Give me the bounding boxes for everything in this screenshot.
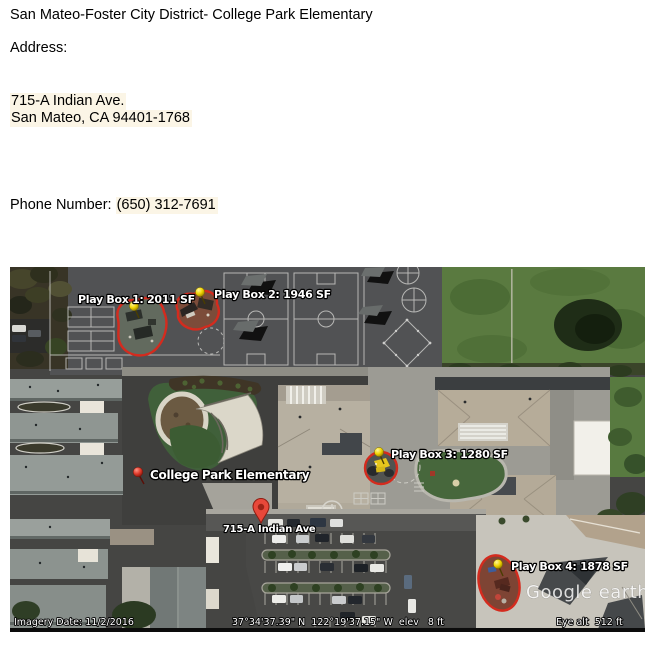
play-box-4-label: Play Box 4: 1878 SF (511, 560, 628, 573)
address-label: Address: (10, 40, 67, 57)
phone-label: Phone Number: (10, 197, 116, 213)
address-line-1-text: 715-A Indian Ave. (10, 93, 126, 110)
street-address-label: 715-A Indian Ave (223, 524, 316, 535)
coordinates-text: 37°34'37.39" N 122°19'37.15" W elev 8 ft (232, 617, 444, 628)
phone-number: (650) 312-7691 (116, 197, 218, 214)
aerial-map-image: Play Box 1: 2011 SF Play Box 2: 1946 SF … (10, 267, 645, 632)
school-label: College Park Elementary (150, 468, 310, 482)
address-line-2: San Mateo, CA 94401-1768 (10, 110, 192, 127)
play-box-3-label: Play Box 3: 1280 SF (391, 448, 508, 461)
image-bottom-strip (10, 628, 645, 632)
page-title: San Mateo-Foster City District- College … (10, 7, 373, 24)
google-earth-watermark: Google earth (526, 582, 645, 603)
google-earth-view: Play Box 1: 2011 SF Play Box 2: 1946 SF … (10, 267, 645, 632)
address-line-1: 715-A Indian Ave. (10, 93, 126, 110)
trees-top-left (10, 267, 72, 369)
phone-line: Phone Number: (650) 312-7691 (10, 197, 218, 214)
address-line-2-text: San Mateo, CA 94401-1768 (10, 110, 192, 127)
play-box-2-label: Play Box 2: 1946 SF (214, 288, 331, 301)
play-box-1-outline (117, 298, 166, 355)
document-page: San Mateo-Foster City District- College … (0, 0, 653, 651)
eye-altitude-text: Eye alt 512 ft (556, 617, 623, 628)
imagery-date-text: Imagery Date: 11/2/2016 (14, 617, 134, 628)
play-box-1-label: Play Box 1: 2011 SF (78, 293, 195, 306)
building-center (278, 385, 370, 523)
grass-field (442, 267, 645, 377)
play-box-1-area (117, 298, 166, 355)
